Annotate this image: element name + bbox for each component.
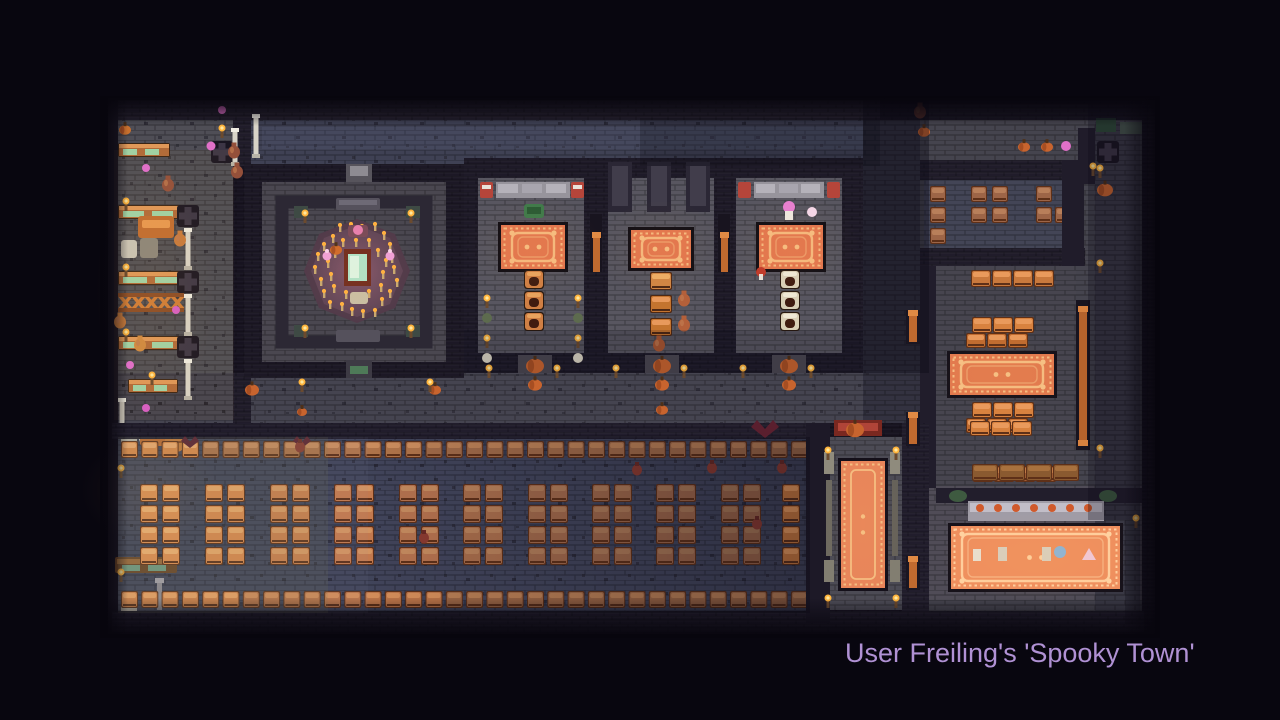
svg-text:User Freiling's 'Spooky Town': User Freiling's 'Spooky Town' [845, 638, 1195, 668]
